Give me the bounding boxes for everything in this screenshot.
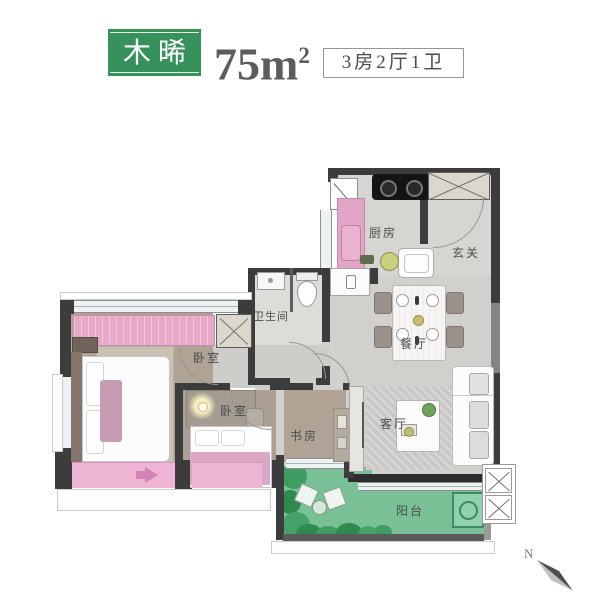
kitchen-fridge	[341, 225, 361, 261]
vanity-outside-bathroom	[330, 268, 370, 296]
area-superscript: 2	[298, 43, 310, 68]
bathroom-sink-drain	[268, 278, 273, 283]
area-text: 75m2	[214, 33, 310, 87]
bay-window-strip-east	[192, 462, 262, 488]
bay-arrow-head	[145, 467, 158, 483]
room-label-study: 书房	[290, 427, 318, 444]
master-bed-blanket	[100, 380, 122, 442]
compass-north-label: N	[524, 546, 533, 562]
floor-plan-page: 木晞 75m2 3房2厅1卫	[0, 0, 616, 603]
tv-screen	[362, 402, 364, 448]
second-bedroom-wall-top-west	[183, 383, 230, 390]
living-balcony-sill	[358, 482, 484, 491]
stove-burner	[406, 180, 423, 197]
balcony-table	[312, 500, 327, 515]
bay-arrow	[136, 467, 160, 483]
vanity-faucet	[346, 275, 356, 289]
master-bed-headboard	[71, 352, 82, 462]
layout-spec-box: 3房2厅1卫	[323, 48, 464, 78]
area-value: 75m	[214, 38, 298, 89]
shoe-cabinet	[428, 172, 490, 200]
room-label-second-bedroom: 卧室	[220, 402, 248, 419]
bathroom-wall-right-upper	[322, 268, 330, 342]
cutting-board	[360, 255, 374, 264]
room-label-kitchen: 厨房	[369, 224, 397, 241]
washer-drum	[459, 501, 478, 520]
second-bed-pillow	[221, 430, 245, 446]
master-top-window	[74, 300, 238, 313]
master-left-outer-sill	[52, 374, 63, 452]
ac-unit-cell	[485, 468, 512, 493]
master-outer-sill	[60, 292, 252, 300]
kitchen-outer-window	[320, 210, 332, 268]
room-label-master-bedroom: 卧室	[193, 349, 221, 366]
desk-lamp	[198, 402, 208, 412]
compass: N	[520, 546, 590, 598]
room-label-living-room: 客厅	[380, 415, 408, 432]
layout-spec-text: 3房2厅1卫	[342, 52, 446, 73]
room-label-dining: 餐厅	[400, 335, 428, 352]
dining-plate	[426, 294, 439, 307]
sofa-cushion	[469, 401, 489, 429]
balcony-wall-bottom	[283, 534, 484, 541]
stove-burner	[380, 180, 397, 197]
second-bed-pillow	[195, 430, 219, 446]
dining-centerpiece	[413, 315, 424, 326]
room-label-bathroom: 卫生间	[253, 308, 289, 324]
kitchen-sink	[398, 248, 434, 278]
badge-text: 木晞	[108, 29, 201, 76]
stove	[372, 174, 430, 200]
washing-machine	[452, 492, 484, 528]
dining-plate	[396, 294, 409, 307]
wall-right-upper	[491, 168, 500, 303]
study-wall-top	[284, 383, 313, 390]
dining-chair	[446, 292, 464, 314]
nightstand-top	[72, 337, 98, 353]
toilet-tank	[296, 272, 318, 281]
ac-unit-platform	[482, 464, 516, 524]
wall-right-mid	[491, 303, 500, 373]
bedroom-divider-wall	[175, 383, 183, 464]
hall-closet	[216, 314, 252, 348]
dining-chair	[446, 326, 464, 348]
ac-unit-cell	[485, 495, 512, 520]
sofa-cushion	[469, 373, 489, 395]
dining-table-decor	[415, 296, 419, 305]
bedroom-outer-ledge	[57, 489, 271, 511]
second-bedroom-wall-top-east	[270, 383, 284, 390]
study-desk	[333, 408, 350, 462]
plan-name-badge: 木晞	[108, 29, 201, 76]
bay-arrow-shaft	[136, 471, 145, 479]
kitchen-pan	[380, 252, 399, 271]
sofa-chaise-line	[453, 395, 493, 396]
room-label-foyer: 玄关	[452, 244, 480, 261]
compass-needle-icon	[534, 558, 578, 596]
dining-chair	[374, 292, 392, 314]
master-pillar-top-right	[238, 298, 250, 314]
sink-basin	[404, 254, 429, 273]
pillar-bottom-left	[55, 452, 72, 489]
bathroom-partition	[290, 268, 293, 312]
study-desk-item	[337, 437, 347, 449]
study-desk-item	[337, 415, 347, 429]
room-label-balcony: 阳台	[396, 502, 424, 519]
bathroom-sink	[257, 272, 285, 290]
living-wall-bottom	[348, 474, 494, 482]
sofa	[452, 366, 494, 466]
balcony-outer-ledge	[271, 541, 495, 554]
coffee-table-plant	[422, 403, 436, 417]
dining-chair	[374, 326, 392, 348]
sofa-cushion	[469, 431, 489, 459]
